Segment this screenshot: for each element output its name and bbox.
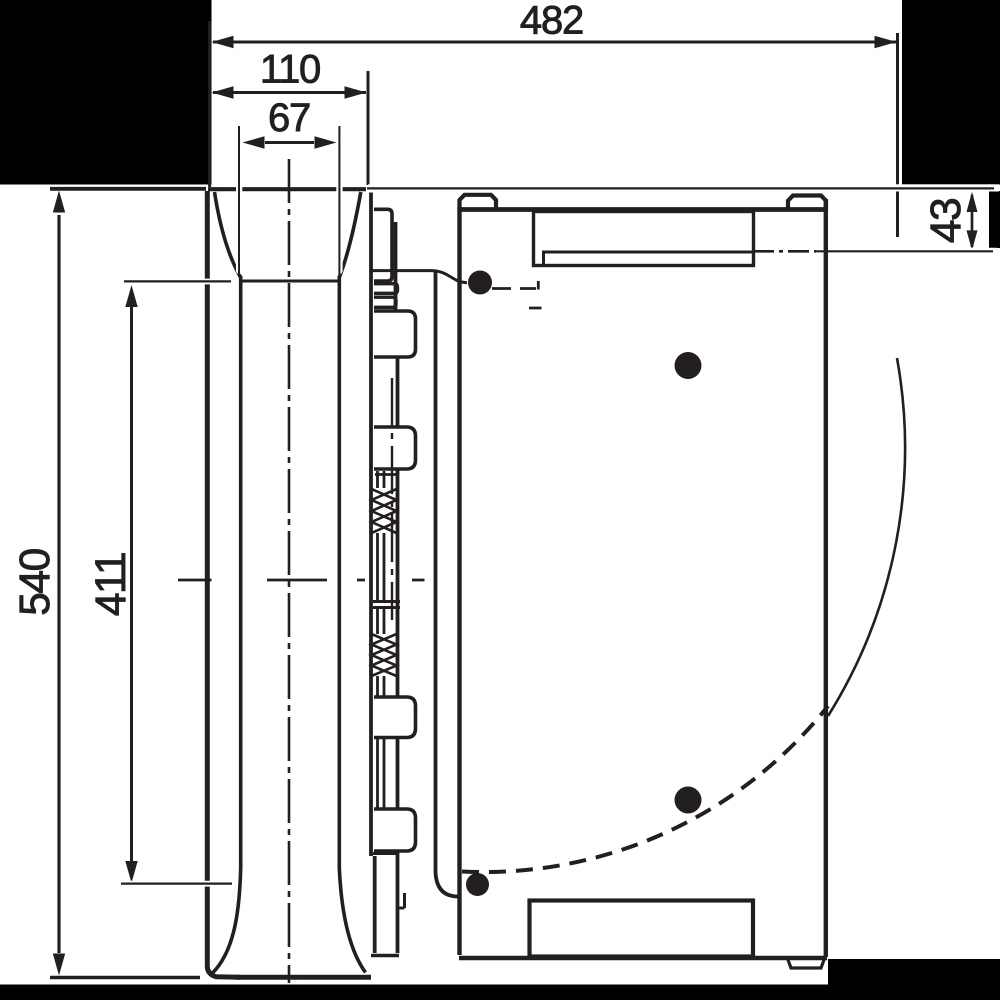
- svg-text:482: 482: [520, 0, 583, 43]
- svg-text:43: 43: [923, 199, 970, 243]
- svg-text:110: 110: [260, 48, 320, 92]
- svg-text:540: 540: [12, 549, 59, 615]
- svg-text:411: 411: [88, 553, 135, 616]
- svg-text:67: 67: [268, 96, 310, 140]
